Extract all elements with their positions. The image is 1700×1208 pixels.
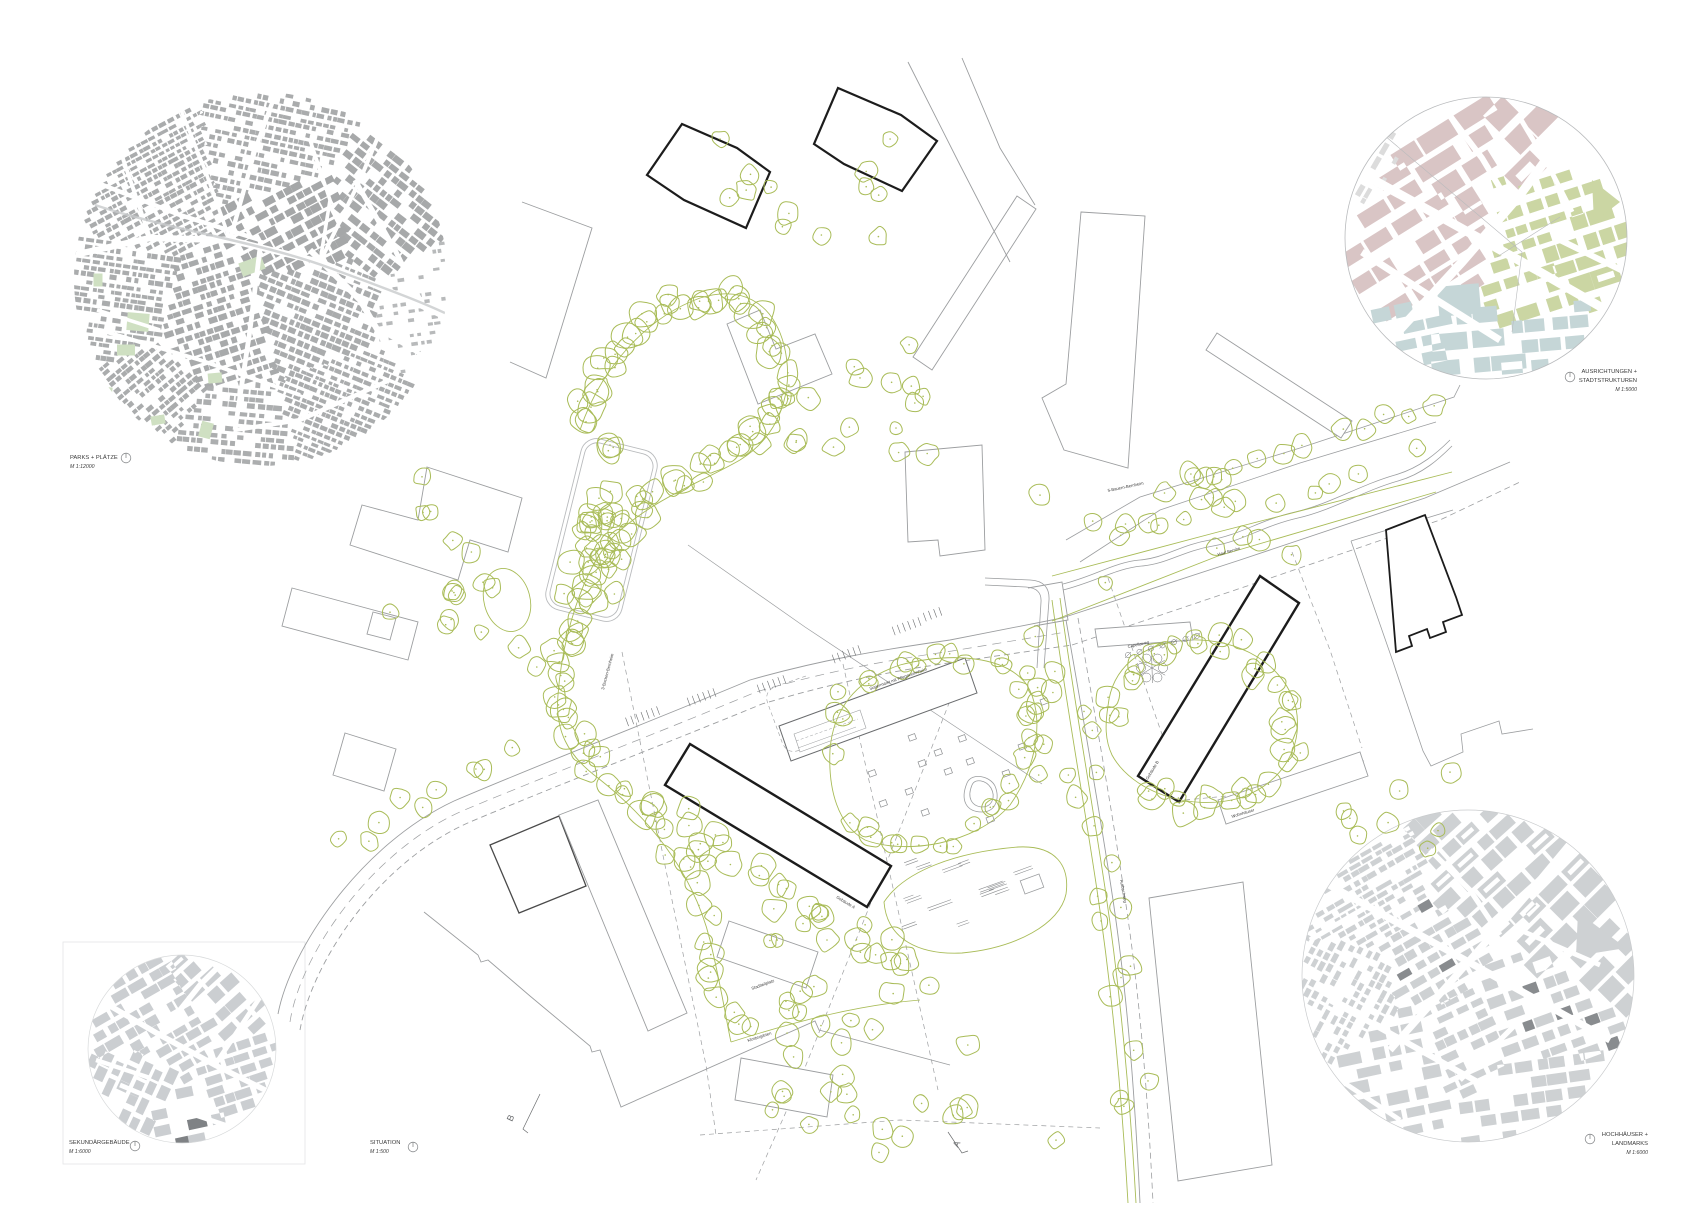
svg-text:PARKS + PLÄTZE: PARKS + PLÄTZE <box>70 454 118 461</box>
svg-text:M 1:6000: M 1:6000 <box>1626 1150 1648 1156</box>
svg-text:SITUATION: SITUATION <box>370 1140 401 1146</box>
svg-text:M 1:500: M 1:500 <box>370 1149 389 1155</box>
svg-text:M 1:12000: M 1:12000 <box>70 464 95 470</box>
svg-text:M 1:6000: M 1:6000 <box>69 1149 91 1155</box>
svg-text:STADTSTRUKTUREN: STADTSTRUKTUREN <box>1579 378 1637 384</box>
svg-text:AUSRICHTUNGEN +: AUSRICHTUNGEN + <box>1581 369 1637 375</box>
svg-text:SEKUNDÄRGEBÄUDE: SEKUNDÄRGEBÄUDE <box>69 1139 130 1146</box>
svg-text:LANDMARKS: LANDMARKS <box>1612 1141 1648 1147</box>
svg-text:M 1:5000: M 1:5000 <box>1615 387 1637 393</box>
svg-text:HOCHHÄUSER +: HOCHHÄUSER + <box>1602 1131 1649 1138</box>
